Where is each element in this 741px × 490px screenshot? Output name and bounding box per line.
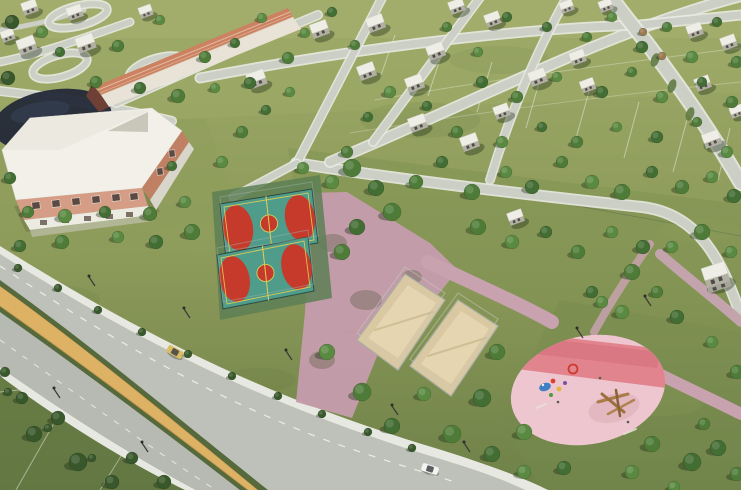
tree-highlight — [475, 391, 484, 400]
tree-highlight — [351, 221, 359, 229]
tree-highlight — [283, 53, 289, 59]
tree-highlight — [53, 412, 60, 419]
tree-highlight — [262, 106, 267, 111]
tree-highlight — [557, 157, 563, 163]
tree-highlight — [55, 285, 59, 289]
scene-svg — [0, 0, 741, 490]
tree-highlight — [713, 18, 718, 23]
play-equipment-green — [549, 393, 553, 397]
plaza-tree-shadow — [350, 290, 382, 310]
grass-mottle — [550, 124, 650, 156]
tree-highlight — [37, 27, 43, 33]
tree-highlight — [423, 102, 428, 107]
tree-highlight — [258, 14, 263, 19]
tree-highlight — [7, 16, 14, 23]
tree-highlight — [722, 147, 728, 153]
tree-highlight — [17, 393, 23, 399]
tree-highlight — [538, 123, 543, 128]
tree-highlight — [687, 52, 693, 58]
lamp-head — [576, 327, 579, 330]
tree-highlight — [365, 429, 369, 433]
tree-highlight — [617, 306, 624, 313]
tree-highlight — [685, 455, 694, 464]
tree-highlight — [151, 236, 158, 243]
tree-highlight — [443, 23, 448, 28]
tree-highlight — [667, 242, 673, 248]
tree-highlight — [173, 90, 180, 97]
tree-highlight — [541, 227, 547, 233]
tree-highlight — [345, 161, 354, 170]
tree-highlight — [491, 346, 499, 354]
tree-highlight — [217, 157, 223, 163]
tree-highlight — [707, 337, 713, 343]
tree-highlight — [89, 455, 93, 459]
tree-highlight — [638, 241, 645, 248]
tree-highlight — [652, 132, 658, 138]
tree-highlight — [693, 118, 698, 123]
tree-highlight — [319, 411, 323, 415]
tree-highlight — [445, 427, 454, 436]
tree-highlight — [113, 41, 119, 47]
tree-highlight — [245, 78, 251, 84]
tree-highlight — [616, 186, 624, 194]
tree-highlight — [286, 88, 291, 93]
tree-highlight — [355, 385, 364, 394]
tree-highlight — [663, 23, 668, 28]
tree-highlight — [437, 157, 443, 163]
tree-highlight — [477, 77, 483, 83]
tree-highlight — [597, 87, 603, 93]
tree-highlight — [5, 173, 11, 179]
tree-highlight — [732, 366, 739, 373]
tree-highlight — [95, 307, 99, 311]
tree-highlight — [732, 468, 739, 475]
tree-highlight — [321, 346, 329, 354]
tree-highlight — [180, 197, 186, 203]
tree-highlight — [587, 176, 594, 183]
tree-highlight — [518, 426, 526, 434]
school-window — [130, 193, 139, 201]
tree-highlight — [364, 113, 369, 118]
tree-highlight — [351, 41, 356, 46]
tree-highlight — [659, 53, 663, 57]
tree-highlight — [669, 482, 675, 488]
tree-highlight — [597, 297, 603, 303]
school-window — [157, 168, 164, 175]
tree-highlight — [127, 453, 133, 459]
tree-highlight — [385, 205, 394, 214]
tree-highlight — [607, 227, 613, 233]
tree-highlight — [503, 13, 508, 18]
lamp-head — [53, 387, 56, 390]
tree-highlight — [328, 8, 333, 13]
person-dot — [599, 377, 602, 380]
lamp-head — [141, 441, 144, 444]
tree-highlight — [572, 137, 578, 143]
lamp-head — [644, 295, 647, 298]
tree-highlight — [712, 442, 720, 450]
tree-highlight — [613, 123, 618, 128]
tree-highlight — [411, 176, 418, 183]
tree-highlight — [637, 42, 643, 48]
tree-highlight — [100, 207, 106, 213]
school-base-window — [84, 216, 91, 221]
tree-highlight — [732, 57, 738, 63]
tree-highlight — [185, 351, 189, 355]
lamp-head — [391, 404, 394, 407]
tree-highlight — [627, 466, 634, 473]
tree-highlight — [699, 419, 705, 425]
tree-123 — [0, 367, 10, 377]
tree-highlight — [139, 329, 143, 333]
tree-highlight — [23, 207, 29, 213]
tree-highlight — [45, 425, 49, 429]
tree-highlight — [113, 232, 119, 238]
tree-highlight — [56, 48, 61, 53]
tree-highlight — [200, 52, 206, 58]
tree-highlight — [474, 48, 479, 53]
tree-highlight — [583, 33, 588, 38]
tree-highlight — [727, 97, 733, 103]
school-base-window — [126, 212, 133, 217]
tree-highlight — [186, 226, 194, 234]
lamp-head — [285, 349, 288, 352]
tree-highlight — [587, 287, 593, 293]
tree-highlight — [135, 83, 141, 89]
tree-highlight — [628, 68, 633, 73]
tree-highlight — [385, 87, 391, 93]
tree-highlight — [159, 476, 166, 483]
school-window — [72, 198, 81, 206]
tree-highlight — [301, 29, 306, 34]
tree-highlight — [409, 445, 413, 449]
tree-highlight — [156, 16, 161, 21]
slide-top — [542, 384, 544, 386]
tree-highlight — [229, 373, 233, 377]
aerial-render: Aerial 3D render of a residential master… — [0, 0, 741, 490]
school-window — [32, 202, 41, 210]
play-equipment-purple — [563, 381, 567, 385]
tree-highlight — [275, 393, 279, 397]
tree-highlight — [501, 167, 507, 173]
lamp-head — [88, 275, 91, 278]
tree-highlight — [60, 210, 67, 217]
school-window — [112, 194, 121, 202]
school-base-window — [40, 220, 47, 225]
tree-highlight — [15, 241, 21, 247]
tree-highlight — [729, 190, 736, 197]
tree-highlight — [107, 476, 114, 483]
tree-highlight — [336, 246, 344, 254]
tree-highlight — [327, 176, 334, 183]
lamp-head — [183, 307, 186, 310]
play-equipment-yellow — [557, 387, 562, 392]
tree-highlight — [231, 39, 236, 44]
tree-highlight — [519, 466, 526, 473]
tree-highlight — [647, 167, 653, 173]
tree-highlight — [573, 246, 580, 253]
school-window — [52, 200, 61, 208]
play-equipment-red — [551, 379, 556, 384]
school-window — [169, 150, 176, 157]
tree-highlight — [652, 287, 658, 293]
tree-highlight — [677, 181, 684, 188]
tree-highlight — [3, 72, 10, 79]
school-window — [92, 196, 101, 204]
tree-highlight — [168, 162, 173, 167]
tree-highlight — [1, 368, 6, 373]
tree-highlight — [543, 23, 548, 28]
tree-highlight — [472, 221, 480, 229]
tree-highlight — [91, 77, 97, 83]
tree-highlight — [707, 172, 713, 178]
tree-highlight — [211, 84, 216, 89]
tree-highlight — [145, 208, 152, 215]
tree-highlight — [698, 78, 703, 83]
tree-highlight — [527, 181, 534, 188]
tree-highlight — [559, 462, 566, 469]
tree-highlight — [452, 127, 458, 133]
tree-highlight — [646, 438, 654, 446]
tree-highlight — [466, 186, 474, 194]
tree-highlight — [237, 127, 243, 133]
tree-highlight — [696, 226, 704, 234]
tree-highlight — [298, 163, 304, 169]
person-dot — [557, 401, 560, 404]
tree-highlight — [672, 311, 679, 318]
tree-highlight — [657, 92, 663, 98]
tree-highlight — [15, 265, 19, 269]
person-dot — [627, 421, 630, 424]
tree-highlight — [553, 73, 558, 78]
tree-highlight — [512, 92, 518, 98]
tree-highlight — [486, 448, 494, 456]
tree-highlight — [626, 266, 634, 274]
tree-highlight — [370, 182, 378, 190]
tree-highlight — [386, 420, 394, 428]
tree-highlight — [640, 29, 644, 33]
tree-highlight — [419, 388, 426, 395]
tree-highlight — [342, 147, 348, 153]
tree-highlight — [5, 389, 9, 393]
tree-highlight — [28, 428, 36, 436]
tree-highlight — [71, 455, 80, 464]
tree-highlight — [608, 13, 613, 18]
tree-highlight — [507, 236, 514, 243]
tree-highlight — [726, 247, 732, 253]
lamp-head — [463, 441, 466, 444]
tree-highlight — [497, 137, 503, 143]
tree-highlight — [57, 236, 64, 243]
